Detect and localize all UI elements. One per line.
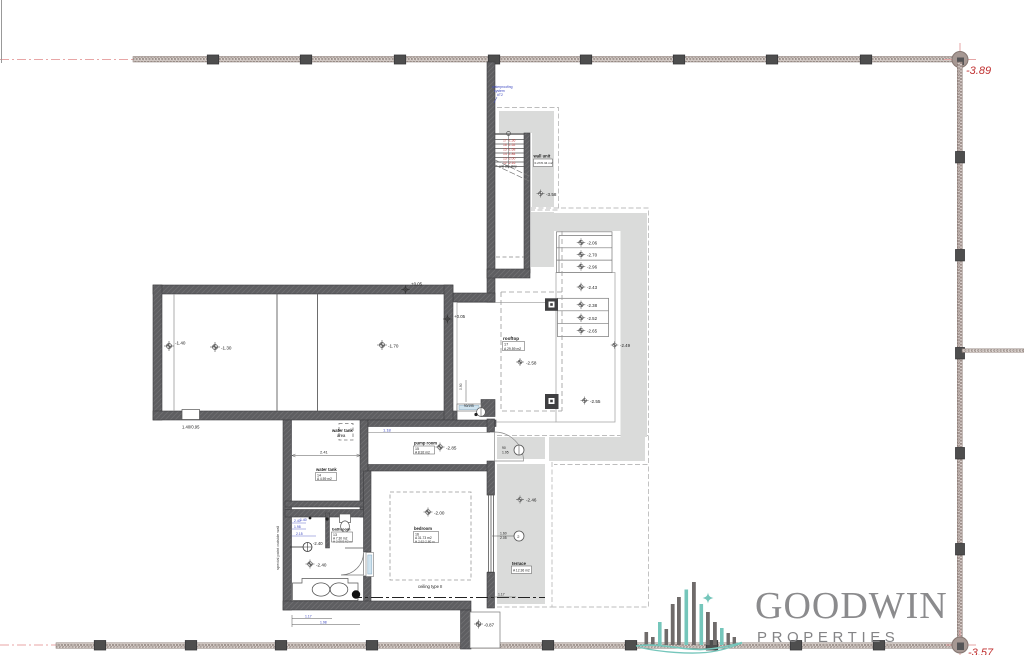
svg-text:-2.96: -2.96 [587, 265, 598, 270]
svg-text:1.40: 1.40 [300, 518, 307, 522]
svg-text:2.41: 2.41 [320, 450, 329, 455]
svg-text:bathroom: bathroom [332, 527, 351, 532]
svg-text:1.98: 1.98 [320, 621, 327, 625]
svg-text:pump room: pump room [414, 441, 437, 446]
svg-text:anti slip strip: anti slip strip [499, 165, 517, 169]
svg-text:-0.87: -0.87 [484, 623, 495, 628]
svg-text:special paint outside wall: special paint outside wall [275, 526, 280, 570]
svg-text:-2.85: -2.85 [446, 446, 457, 451]
svg-text:-1.30: -1.30 [221, 346, 232, 351]
svg-text:-2.00: -2.00 [434, 511, 445, 516]
svg-text:-2.52: -2.52 [587, 316, 598, 321]
svg-text:1.18: 1.18 [383, 428, 392, 433]
svg-text:1.17: 1.17 [305, 615, 312, 619]
svg-text:-2.58: -2.58 [526, 361, 537, 366]
svg-text:15 -1.68: 15 -1.68 [503, 148, 516, 152]
svg-text:0.27/0.34 m2: 0.27/0.34 m2 [535, 161, 553, 165]
svg-text:90/195: 90/195 [464, 404, 474, 408]
svg-text:1.60: 1.60 [500, 532, 507, 536]
svg-text:-2.43: -2.43 [587, 285, 598, 290]
svg-text:-2.40: -2.40 [313, 541, 323, 546]
svg-text:+0.05: +0.05 [454, 314, 466, 319]
svg-text:-2.70: -2.70 [587, 253, 598, 258]
svg-text:16 -1.52: 16 -1.52 [503, 143, 516, 147]
svg-text:-1.70: -1.70 [388, 344, 399, 349]
svg-text:-3.89: -3.89 [966, 65, 991, 77]
svg-text:wall unit: wall unit [533, 154, 551, 159]
svg-text:90: 90 [502, 446, 506, 450]
svg-text:1.17: 1.17 [498, 593, 505, 597]
svg-text:PROPERTIES: PROPERTIES [757, 629, 899, 646]
svg-text:-2.49: -2.49 [620, 343, 631, 348]
svg-text:terrace: terrace [512, 561, 527, 566]
svg-text:-2.40: -2.40 [316, 563, 327, 568]
svg-text:2.05: 2.05 [500, 536, 507, 540]
svg-text:-3.57: -3.57 [968, 647, 994, 655]
svg-text:-2.46: -2.46 [526, 498, 537, 503]
svg-text:area: area [337, 433, 346, 438]
svg-text:1.40/0.95: 1.40/0.95 [182, 425, 200, 430]
svg-text:17 -1.36: 17 -1.36 [503, 139, 516, 143]
svg-text:-2.06: -2.06 [587, 241, 598, 246]
svg-text:water tank: water tank [315, 467, 337, 472]
svg-text:ceiling type II: ceiling type II [418, 584, 442, 589]
svg-text:A 29.59 m2: A 29.59 m2 [504, 347, 521, 351]
svg-text:A 8.92 m2: A 8.92 m2 [415, 451, 430, 455]
svg-text:#T2: #T2 [497, 93, 503, 97]
svg-text:1.98: 1.98 [294, 525, 301, 529]
svg-text:14 -1.84: 14 -1.84 [503, 152, 516, 156]
svg-text:-3.58: -3.58 [546, 192, 557, 197]
svg-text:1.95: 1.95 [502, 451, 509, 455]
svg-text:-2.55: -2.55 [590, 399, 601, 404]
svg-text:0.90: 0.90 [459, 383, 463, 390]
svg-text:-2.38: -2.38 [587, 303, 598, 308]
svg-text:H 2.62-2.80 m: H 2.62-2.80 m [415, 539, 435, 543]
svg-text:-2.65: -2.65 [587, 329, 598, 334]
svg-text:2.15: 2.15 [296, 532, 303, 536]
svg-text:A 12.36 m2: A 12.36 m2 [513, 569, 530, 573]
svg-text:+0.05: +0.05 [411, 282, 423, 287]
svg-text:bedroom: bedroom [414, 526, 432, 531]
svg-text:-1.40: -1.40 [175, 341, 186, 346]
svg-text:13 -2.00: 13 -2.00 [503, 157, 516, 161]
svg-text:17: 17 [504, 343, 508, 347]
svg-text:H 2.05/2.62 m: H 2.05/2.62 m [333, 540, 352, 544]
svg-text:rooftop: rooftop [503, 336, 519, 341]
svg-text:A 4.59 m2: A 4.59 m2 [317, 477, 332, 481]
svg-text:GOODWIN: GOODWIN [755, 585, 948, 627]
